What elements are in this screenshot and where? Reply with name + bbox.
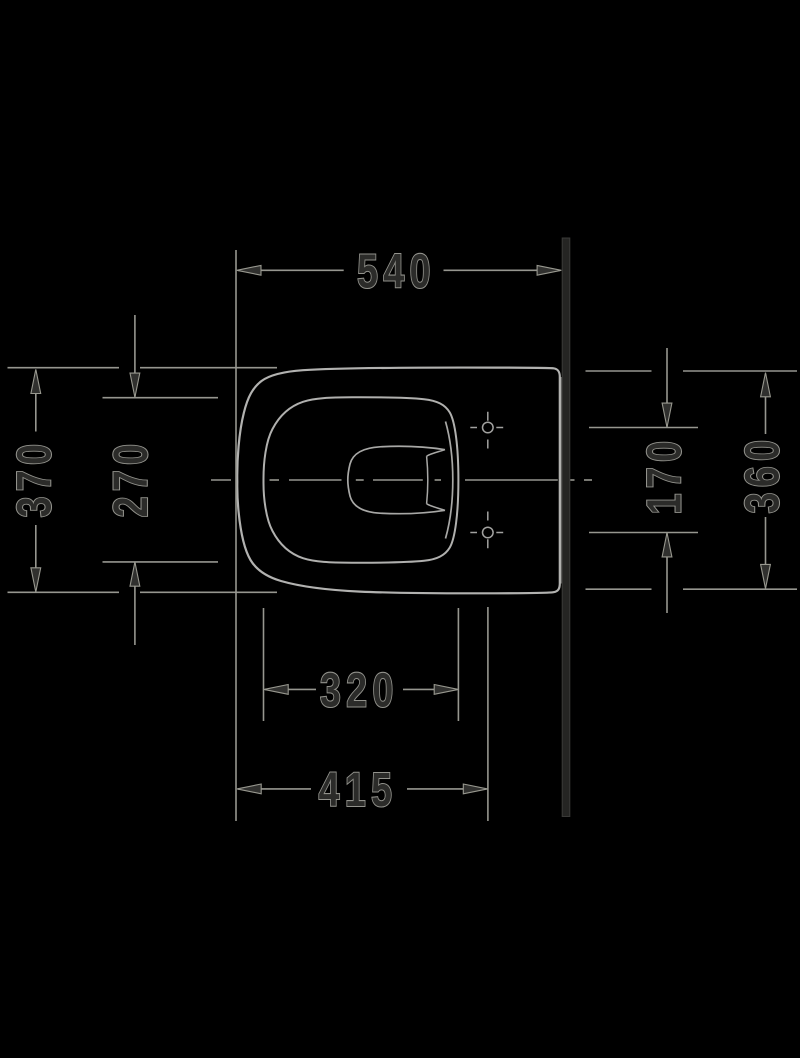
- svg-text:320: 320: [320, 664, 399, 718]
- svg-text:360: 360: [736, 435, 790, 514]
- svg-text:170: 170: [638, 436, 692, 515]
- svg-text:370: 370: [8, 439, 62, 518]
- svg-text:540: 540: [357, 245, 436, 299]
- svg-text:415: 415: [319, 764, 398, 818]
- svg-text:270: 270: [105, 439, 159, 518]
